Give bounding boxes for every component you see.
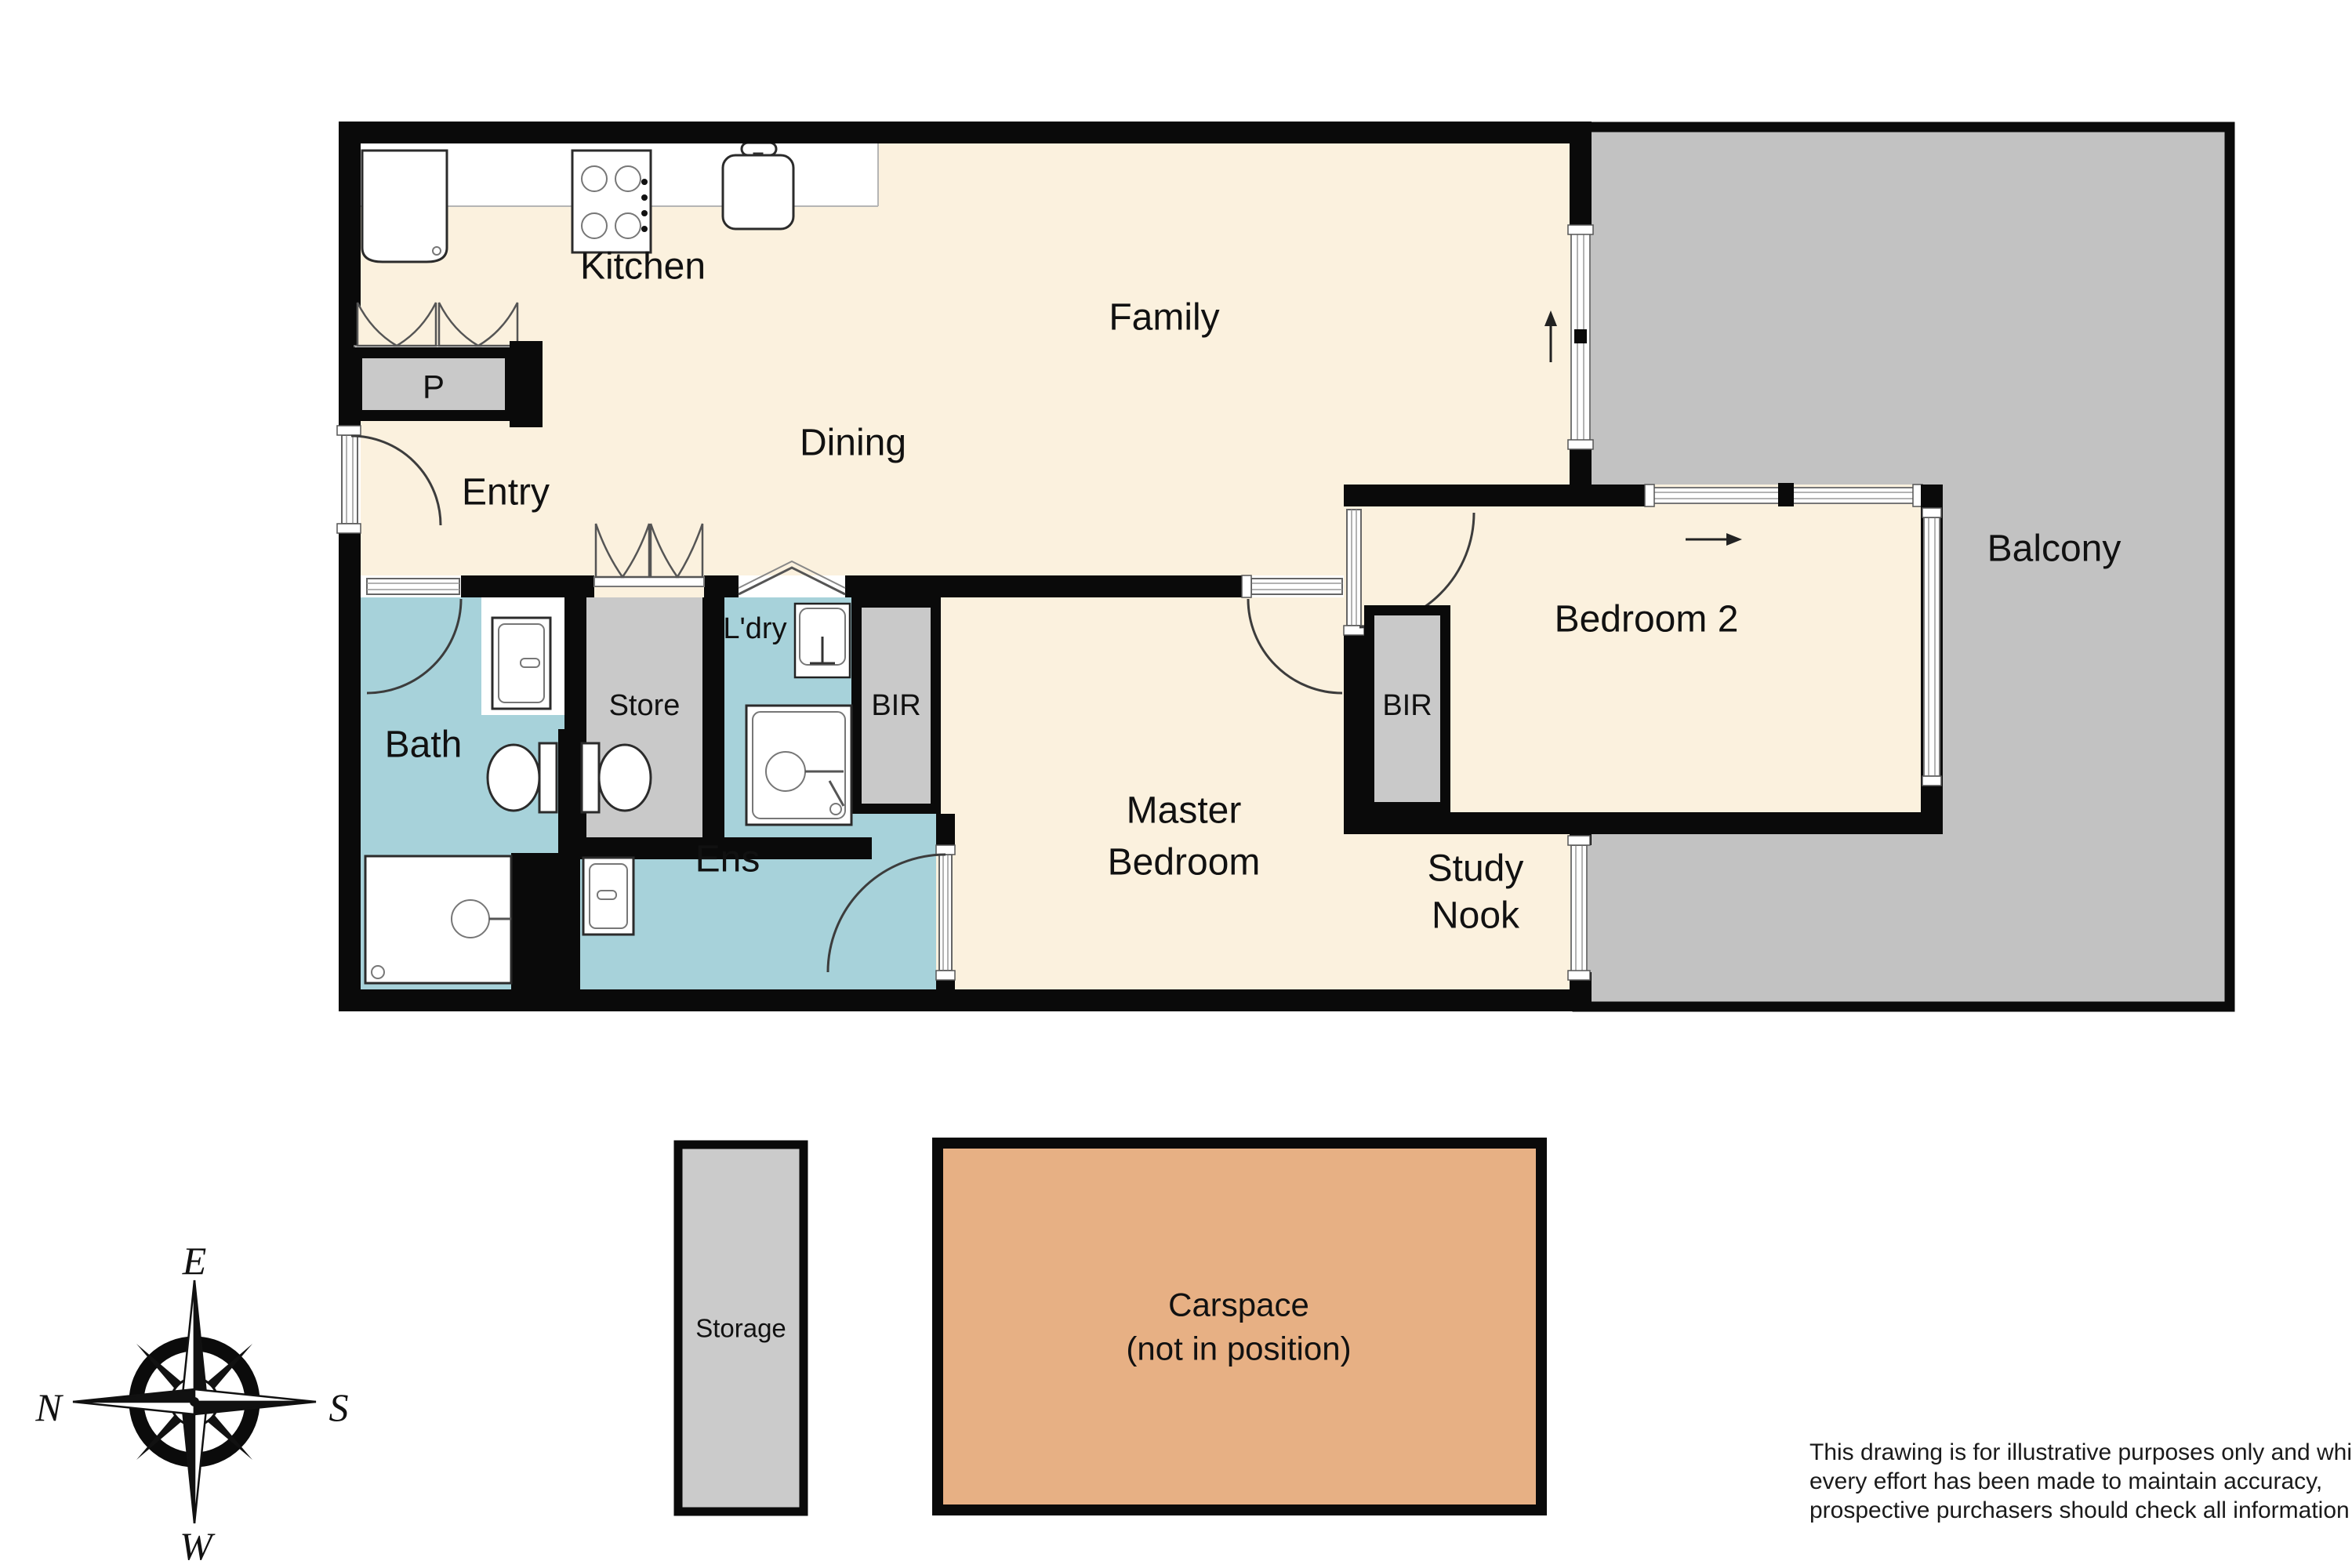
compass-south-label: S bbox=[329, 1385, 349, 1429]
storage-label: Storage bbox=[695, 1314, 786, 1343]
wall-mid-2 bbox=[704, 575, 739, 597]
family-label: Family bbox=[1109, 297, 1219, 339]
wall-bath-ens-divider bbox=[558, 729, 580, 859]
carspace-box bbox=[938, 1143, 1541, 1510]
wall-bedroom2-bottom bbox=[1344, 812, 1943, 834]
bir-master-label: BIR bbox=[871, 689, 920, 722]
ensuite-vanity-icon bbox=[583, 858, 633, 935]
study-nook-label-line1: Study bbox=[1428, 848, 1524, 890]
bath-toilet-icon bbox=[488, 743, 557, 812]
disclaimer-line1: This drawing is for illustrative purpose… bbox=[1809, 1439, 2352, 1465]
bedroom2-label: Bedroom 2 bbox=[1555, 599, 1739, 641]
bedroom2-right-window bbox=[1922, 508, 1941, 786]
wall-bottom bbox=[339, 989, 1592, 1011]
pantry-box bbox=[351, 341, 543, 427]
store-label: Store bbox=[609, 689, 681, 722]
family-sliding-door bbox=[1568, 225, 1593, 449]
wall-store-right bbox=[702, 597, 724, 837]
bath-shower-icon bbox=[365, 856, 511, 983]
master-bedroom-label-line1: Master bbox=[1127, 790, 1242, 832]
wall-bedroom2-top bbox=[1344, 485, 1651, 506]
carspace-label-line1: Carspace bbox=[1168, 1287, 1309, 1323]
wall-right-upper bbox=[1570, 122, 1592, 231]
cooktop-icon bbox=[572, 151, 651, 252]
wall-left bbox=[339, 122, 361, 1011]
disclaimer-line3: prospective purchasers should check all … bbox=[1809, 1497, 2350, 1523]
balcony-label: Balcony bbox=[1987, 528, 2122, 570]
floor-plan-svg: P Store bbox=[0, 0, 2352, 1568]
entry-label: Entry bbox=[462, 472, 550, 514]
bir-bedroom2-label: BIR bbox=[1382, 689, 1432, 722]
floorplan-page: P Store bbox=[0, 0, 2352, 1568]
ensuite-label: Ens bbox=[695, 839, 760, 880]
laundry-tub-icon bbox=[795, 604, 850, 677]
bath-label: Bath bbox=[385, 724, 463, 766]
wall-mid-3 bbox=[845, 575, 1248, 597]
compass-rose-icon bbox=[73, 1280, 316, 1523]
wall-right-mid bbox=[1570, 443, 1592, 490]
kitchen-sink-icon bbox=[723, 143, 793, 229]
laundry-label: L'dry bbox=[723, 612, 786, 645]
fridge-icon bbox=[362, 151, 447, 262]
compass-west-label: W bbox=[180, 1524, 216, 1568]
pantry-label: P bbox=[423, 368, 445, 405]
wall-mid-1 bbox=[461, 575, 594, 597]
bath-vanity-icon bbox=[492, 618, 550, 709]
wall-shower-divider bbox=[511, 853, 580, 989]
disclaimer-line2: every effort has been made to maintain a… bbox=[1809, 1468, 2322, 1494]
master-bedroom-label-line2: Bedroom bbox=[1108, 842, 1261, 884]
study-nook-window bbox=[1568, 836, 1590, 980]
compass-east-label: E bbox=[182, 1239, 207, 1283]
ensuite-toilet-icon bbox=[582, 743, 651, 812]
study-nook-label-line2: Nook bbox=[1432, 895, 1520, 937]
ensuite-shower-icon bbox=[746, 706, 851, 825]
wall-top bbox=[339, 122, 1592, 143]
carspace-label-line2: (not in position) bbox=[1126, 1330, 1351, 1367]
dining-label: Dining bbox=[800, 423, 906, 464]
wall-bedroom2-left bbox=[1344, 626, 1364, 812]
kitchen-label: Kitchen bbox=[580, 246, 706, 288]
compass-north-label: N bbox=[34, 1385, 64, 1429]
